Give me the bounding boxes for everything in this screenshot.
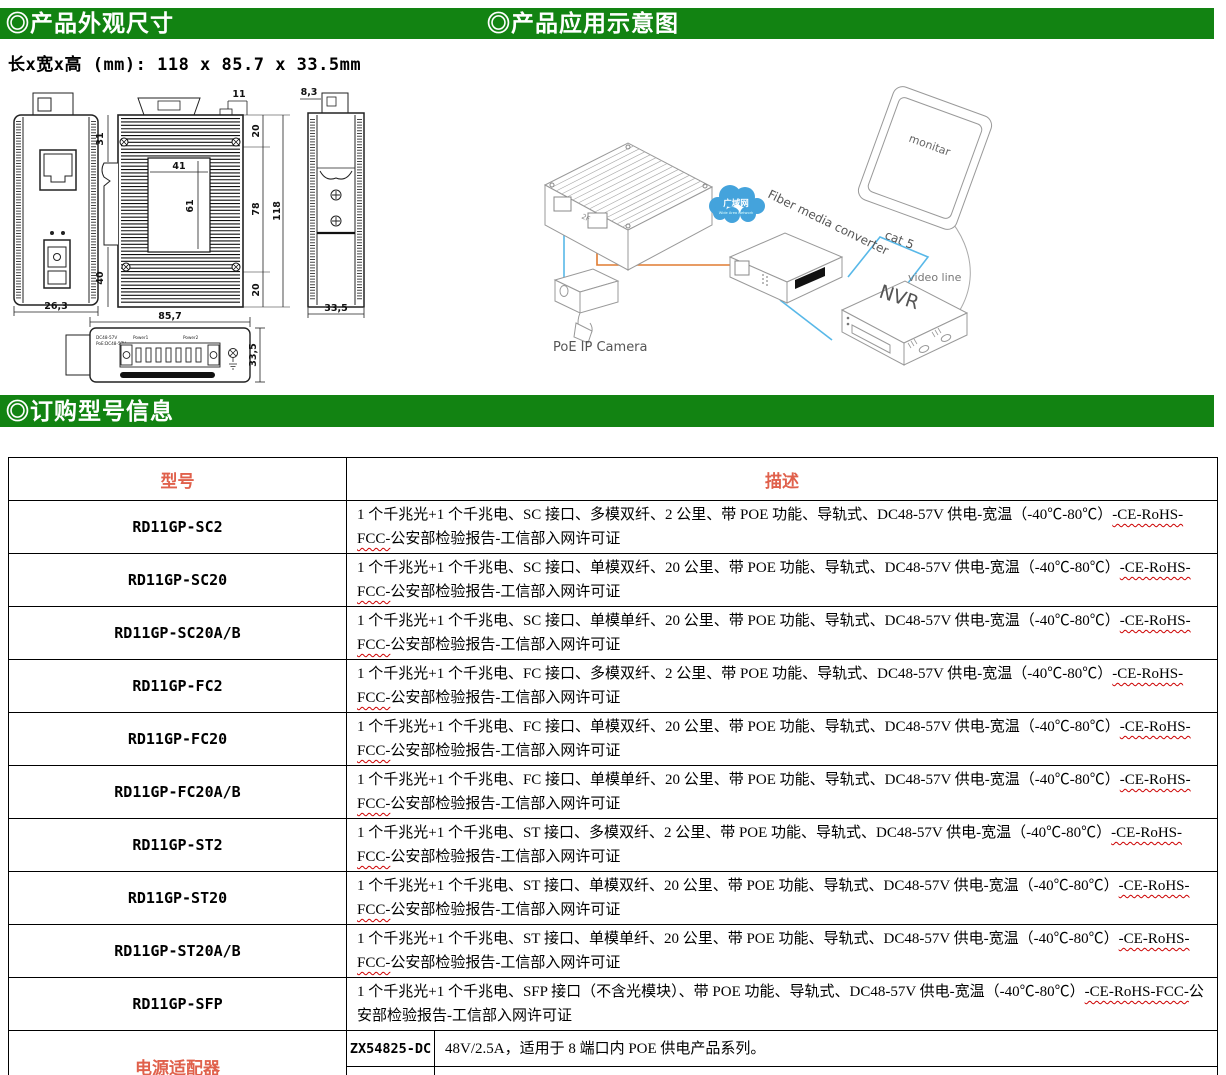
dim-side-top: 8,3 xyxy=(301,87,318,98)
table-row: RD11GP-FC2 1 个千兆光+1 个千兆电、FC 接口、多模双纤、2 公里… xyxy=(9,660,1218,713)
dim-right-mid: 78 xyxy=(251,202,262,216)
adapter-desc-cell: 48V/2.5A，适用于 8 端口内 POE 供电产品系列。 xyxy=(435,1031,1218,1067)
desc-cert-rest: 公安部检验报告-工信部入网许可证 xyxy=(390,637,620,653)
dim-side-width: 33,5 xyxy=(324,303,347,314)
dim-front-width: 26,3 xyxy=(44,301,67,312)
cloud-sublabel: Wide Area Network xyxy=(719,211,754,215)
dim-tab: 11 xyxy=(232,89,245,100)
adapter-model-cell: ZX55223-DC xyxy=(347,1067,435,1075)
desc-cell: 1 个千兆光+1 个千兆电、ST 接口、单模单纤、20 公里、带 POE 功能、… xyxy=(347,925,1218,978)
poe-device: 2F xyxy=(545,143,712,270)
desc-text: 1 个千兆光+1 个千兆电、ST 接口、多模双纤、2 公里、带 POE 功能、导… xyxy=(357,825,1111,841)
table-row: RD11GP-FC20 1 个千兆光+1 个千兆电、FC 接口、单模双纤、20 … xyxy=(9,713,1218,766)
wan-cloud: 广域网 Wide Area Network xyxy=(709,185,765,223)
ip-camera: PoE IP Camera xyxy=(553,269,648,355)
desc-cert-rest: 公安部检验报告-工信部入网许可证 xyxy=(390,743,620,759)
model-cell: RD11GP-SFP xyxy=(9,978,347,1031)
desc-cell: 1 个千兆光+1 个千兆电、SC 接口、多模双纤、2 公里、带 POE 功能、导… xyxy=(347,501,1218,554)
front-view-drawing: 26,3 xyxy=(14,93,98,316)
bottom-view-drawing: 85,7 DC48-57V PoE:DC48-57V Power1 Power2 xyxy=(66,311,265,382)
desc-text: 1 个千兆光+1 个千兆电、ST 接口、单模单纤、20 公里、带 POE 功能、… xyxy=(357,931,1119,947)
desc-cell: 1 个千兆光+1 个千兆电、SFP 接口（不含光模块）、带 POE 功能、导轨式… xyxy=(347,978,1218,1031)
bottom-view-power1: Power1 xyxy=(133,335,149,340)
model-cell: RD11GP-FC2 xyxy=(9,660,347,713)
datasheet-page: ◎产品外观尺寸 ◎产品应用示意图 长x宽x高 (mm): 118 x 85.7 … xyxy=(0,0,1226,1075)
desc-text: 1 个千兆光+1 个千兆电、SC 接口、单模单纤、20 公里、带 POE 功能、… xyxy=(357,613,1120,629)
desc-cert-rest: 公安部检验报告-工信部入网许可证 xyxy=(390,796,620,812)
desc-cert-rest: 公安部检验报告-工信部入网许可证 xyxy=(390,849,620,865)
order-table: 型号 描述 RD11GP-SC2 1 个千兆光+1 个千兆电、SC 接口、多模双… xyxy=(8,457,1218,1075)
product-size-text: 长x宽x高 (mm): 118 x 85.7 x 33.5mm xyxy=(8,50,361,75)
desc-cell: 1 个千兆光+1 个千兆电、SC 接口、单模双纤、20 公里、带 POE 功能、… xyxy=(347,554,1218,607)
dim-plate-width: 41 xyxy=(172,161,185,172)
dim-left-top: 31 xyxy=(95,132,106,145)
table-row: RD11GP-ST20A/B 1 个千兆光+1 个千兆电、ST 接口、单模单纤、… xyxy=(9,925,1218,978)
table-row: RD11GP-SC2 1 个千兆光+1 个千兆电、SC 接口、多模双纤、2 公里… xyxy=(9,501,1218,554)
dim-left-bottom: 40 xyxy=(95,271,106,285)
table-row: RD11GP-SC20A/B 1 个千兆光+1 个千兆电、SC 接口、单模单纤、… xyxy=(9,607,1218,660)
order-section-title: ◎订购型号信息 xyxy=(6,395,174,427)
desc-text: 1 个千兆光+1 个千兆电、SC 接口、单模双纤、20 公里、带 POE 功能、… xyxy=(357,560,1120,576)
adapter-model-cell: ZX54825-DC xyxy=(347,1031,435,1067)
desc-text: 1 个千兆光+1 个千兆电、ST 接口、单模双纤、20 公里、带 POE 功能、… xyxy=(357,878,1119,894)
adapter-desc-cell: 52V/2.3A，适用于 8 端口内 POE 供电产品系列。 xyxy=(435,1067,1218,1075)
nvr: NVR xyxy=(842,281,967,365)
cloud-label: 广域网 xyxy=(723,198,749,209)
desc-cert-rest: 公安部检验报告-工信部入网许可证 xyxy=(390,531,620,547)
model-cell: RD11GP-ST20A/B xyxy=(9,925,347,978)
camera-label: PoE IP Camera xyxy=(553,340,648,355)
desc-cert-rest: 公安部检验报告-工信部入网许可证 xyxy=(390,955,620,971)
video-line-label: video line xyxy=(908,271,962,284)
desc-text: 1 个千兆光+1 个千兆电、FC 接口、单模双纤、20 公里、带 POE 功能、… xyxy=(357,719,1120,735)
table-row: RD11GP-ST20 1 个千兆光+1 个千兆电、ST 接口、单模双纤、20 … xyxy=(9,872,1218,925)
desc-cell: 1 个千兆光+1 个千兆电、SC 接口、单模单纤、20 公里、带 POE 功能、… xyxy=(347,607,1218,660)
col-header-desc: 描述 xyxy=(347,458,1218,501)
adapter-row: 电源适配器 ZX54825-DC 48V/2.5A，适用于 8 端口内 POE … xyxy=(9,1031,1218,1067)
application-diagram: 2F PoE IP Camera 广域网 Wide Area Network xyxy=(480,85,1040,397)
dim-bottom-height: 33,5 xyxy=(248,343,259,366)
desc-text: 1 个千兆光+1 个千兆电、SFP 接口（不含光模块）、带 POE 功能、导轨式… xyxy=(357,984,1085,1000)
application-section-title: ◎产品应用示意图 xyxy=(487,8,679,39)
model-cell: RD11GP-ST20 xyxy=(9,872,347,925)
dimensions-section-title: ◎产品外观尺寸 xyxy=(6,8,174,39)
section-header-order: ◎订购型号信息 xyxy=(0,395,1214,427)
model-cell: RD11GP-FC20A/B xyxy=(9,766,347,819)
model-cell: RD11GP-FC20 xyxy=(9,713,347,766)
desc-cell: 1 个千兆光+1 个千兆电、FC 接口、单模双纤、20 公里、带 POE 功能、… xyxy=(347,713,1218,766)
col-header-model: 型号 xyxy=(9,458,347,501)
desc-cert-rest: 公安部检验报告-工信部入网许可证 xyxy=(390,690,620,706)
back-view-drawing: 41 61 31 40 11 20 78 20 118 xyxy=(95,89,290,307)
bottom-view-power2: Power2 xyxy=(183,335,199,340)
table-header-row: 型号 描述 xyxy=(9,458,1218,501)
dim-bottom-width: 85,7 xyxy=(158,311,181,322)
desc-cell: 1 个千兆光+1 个千兆电、FC 接口、多模双纤、2 公里、带 POE 功能、导… xyxy=(347,660,1218,713)
model-cell: RD11GP-SC20 xyxy=(9,554,347,607)
desc-text: 1 个千兆光+1 个千兆电、FC 接口、多模双纤、2 公里、带 POE 功能、导… xyxy=(357,666,1112,682)
section-header-top: ◎产品外观尺寸 ◎产品应用示意图 xyxy=(0,8,1214,39)
desc-text: 1 个千兆光+1 个千兆电、FC 接口、单模单纤、20 公里、带 POE 功能、… xyxy=(357,772,1120,788)
desc-cert-squiggle: -CE-RoHS-FCC- xyxy=(1085,984,1189,1000)
table-row: RD11GP-SFP 1 个千兆光+1 个千兆电、SFP 接口（不含光模块）、带… xyxy=(9,978,1218,1031)
desc-cell: 1 个千兆光+1 个千兆电、FC 接口、单模单纤、20 公里、带 POE 功能、… xyxy=(347,766,1218,819)
table-row: RD11GP-FC20A/B 1 个千兆光+1 个千兆电、FC 接口、单模单纤、… xyxy=(9,766,1218,819)
desc-cell: 1 个千兆光+1 个千兆电、ST 接口、多模双纤、2 公里、带 POE 功能、导… xyxy=(347,819,1218,872)
bottom-view-text1: DC48-57V xyxy=(96,335,117,340)
desc-cert-rest: 公安部检验报告-工信部入网许可证 xyxy=(390,902,620,918)
dim-total-height: 118 xyxy=(272,201,283,221)
model-cell: RD11GP-ST2 xyxy=(9,819,347,872)
dim-right-bottom: 20 xyxy=(251,283,262,297)
desc-cell: 1 个千兆光+1 个千兆电、ST 接口、单模双纤、20 公里、带 POE 功能、… xyxy=(347,872,1218,925)
model-cell: RD11GP-SC2 xyxy=(9,501,347,554)
table-row: RD11GP-SC20 1 个千兆光+1 个千兆电、SC 接口、单模双纤、20 … xyxy=(9,554,1218,607)
dim-plate-height: 61 xyxy=(185,199,196,212)
desc-text: 1 个千兆光+1 个千兆电、SC 接口、多模双纤、2 公里、带 POE 功能、导… xyxy=(357,507,1112,523)
table-row: RD11GP-ST2 1 个千兆光+1 个千兆电、ST 接口、多模双纤、2 公里… xyxy=(9,819,1218,872)
side-view-drawing: 8,3 33,5 xyxy=(300,87,364,318)
dim-right-top: 20 xyxy=(251,124,262,138)
model-cell: RD11GP-SC20A/B xyxy=(9,607,347,660)
desc-cert-rest: 公安部检验报告-工信部入网许可证 xyxy=(390,584,620,600)
adapter-label-cell: 电源适配器 xyxy=(9,1031,347,1075)
monitor: monitar xyxy=(856,85,995,232)
dimension-drawings: 26,3 41 61 31 xyxy=(0,85,480,400)
